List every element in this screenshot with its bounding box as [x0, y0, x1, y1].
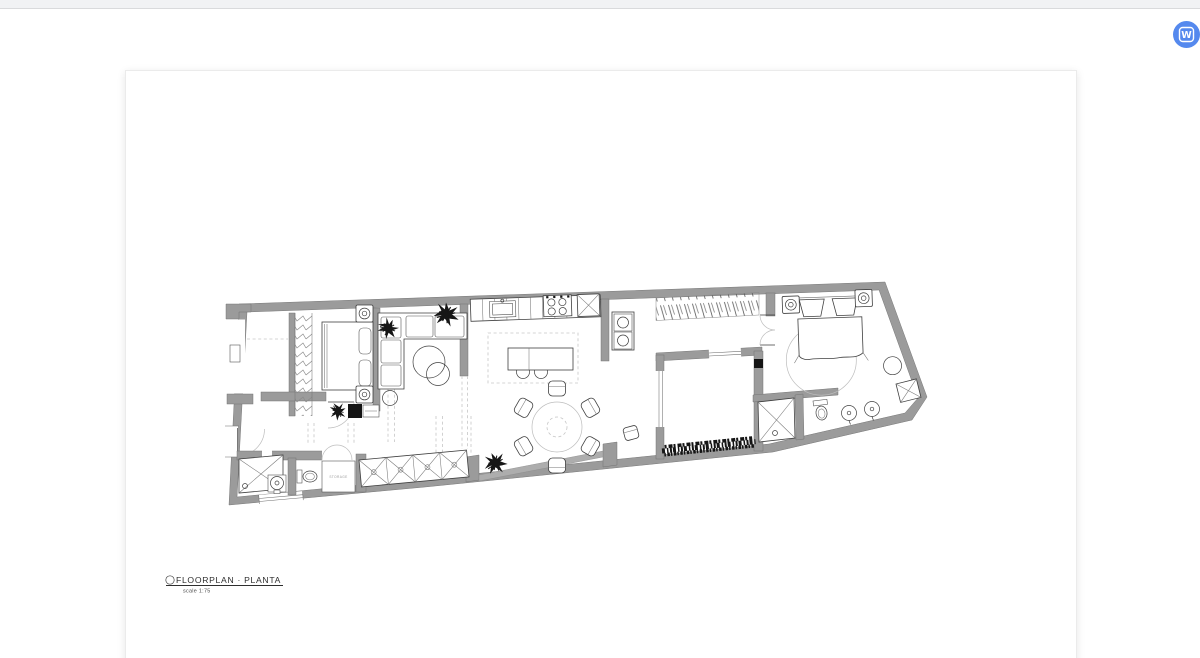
- corridor-chair: [623, 425, 640, 441]
- bathroom-left: [239, 455, 317, 494]
- dining-chair: [549, 458, 566, 473]
- dining-chair: [549, 381, 566, 396]
- master-double-doors: [760, 315, 775, 345]
- wall-cap-topleft: [226, 304, 251, 319]
- screen: W: [0, 0, 1200, 658]
- document-page: STORAGE: [125, 70, 1077, 658]
- dining-chair: [513, 397, 534, 419]
- side-table: [883, 356, 902, 375]
- side-stool: [383, 391, 398, 406]
- dining-table: [532, 402, 582, 452]
- storage-label: STORAGE: [329, 475, 347, 479]
- shower-master: [758, 398, 795, 442]
- floorplan-title: FLOORPLAN · PLANTA: [176, 575, 281, 585]
- word-app-badge[interactable]: W: [1173, 21, 1200, 48]
- oven-column: [612, 312, 634, 350]
- courtyard: [623, 293, 775, 455]
- wardrobe-hatch: [295, 313, 312, 416]
- kitchen-sink: [489, 299, 516, 318]
- nightstand-lamp: [782, 296, 800, 314]
- window-left: [230, 345, 240, 362]
- sink: [268, 475, 286, 494]
- tv-unit: [348, 404, 379, 418]
- toilet-master: [813, 399, 829, 421]
- wall-stub-left: [227, 394, 253, 404]
- browser-topbar: [0, 0, 1200, 9]
- floorplan-drawing: STORAGE: [126, 71, 1076, 658]
- coffee-table: [413, 346, 445, 378]
- dining-chair: [513, 435, 534, 457]
- scale-label: scale 1:75: [183, 589, 211, 595]
- toilet: [297, 470, 317, 483]
- nightstand-lamp: [855, 289, 873, 307]
- bed-left: [322, 322, 373, 390]
- coffee-table: [427, 363, 450, 386]
- window-bottom-left: [259, 491, 304, 504]
- reference-bubble: [166, 576, 174, 584]
- title-block: FLOORPLAN · PLANTA scale 1:75: [166, 575, 283, 595]
- nightstand-lamp: [356, 386, 373, 403]
- kitchen-island: [508, 348, 573, 379]
- badge-letter: W: [1181, 30, 1192, 41]
- stove: [543, 295, 572, 317]
- kitchen: [470, 294, 634, 379]
- nightstand-lamp: [356, 305, 373, 322]
- dining-chair: [580, 397, 601, 419]
- counter-cabinet-x: [577, 294, 600, 317]
